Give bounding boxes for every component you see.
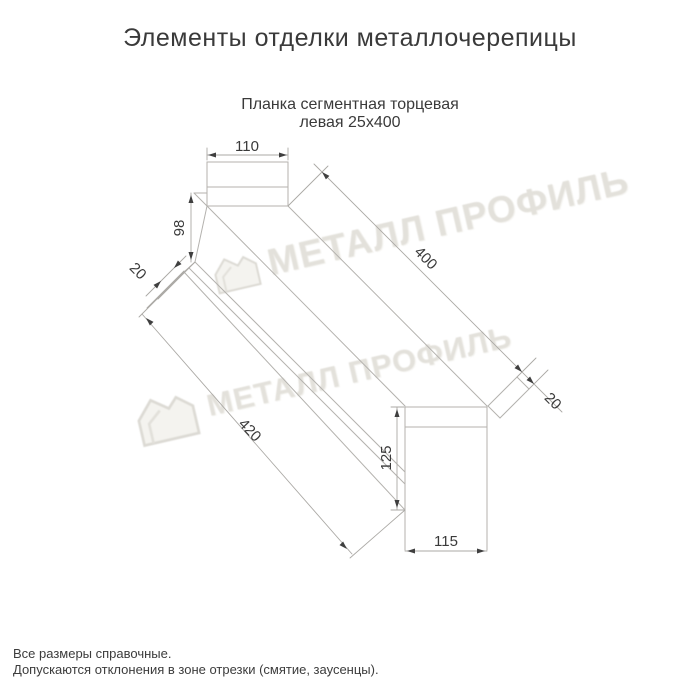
dim-label-left-flange: 20 [126,259,150,283]
dimension-arrows [146,153,534,554]
dim-label-right-flange: 20 [541,389,565,413]
dimension-lines [139,148,562,558]
dim-label-right-width: 115 [434,533,458,550]
dim-label-left-height: 98 [171,220,188,237]
profile-technical-drawing: 110 98 20 400 20 420 125 115 [0,0,700,700]
profile-outline [184,162,529,550]
dim-label-length-bottom: 420 [235,415,265,445]
dim-label-right-height: 125 [378,445,395,470]
dim-label-top-width: 110 [235,138,259,155]
drawing-page: МЕТАЛЛ ПРОФИЛЬ МЕТАЛЛ ПРОФИЛЬ [0,0,700,700]
dim-label-length-top: 400 [411,243,441,273]
